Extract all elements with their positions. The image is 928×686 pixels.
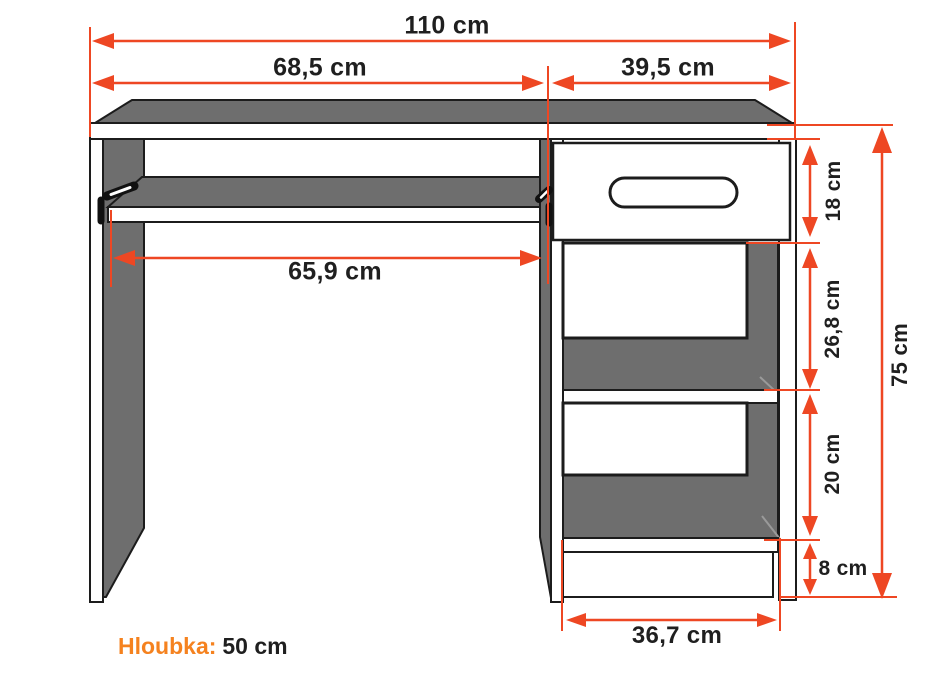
plinth — [563, 538, 778, 597]
dim-left-section-label: 68,5 cm — [273, 54, 367, 83]
open-shelf-upper — [563, 243, 778, 390]
dim-right-section-label: 39,5 cm — [621, 54, 715, 83]
dim-keyboard-tray-label: 65,9 cm — [288, 258, 382, 287]
dim-drawer-height-label: 18 cm — [822, 160, 846, 221]
depth-note: Hloubka:50 cm — [118, 633, 288, 660]
desk-line-art — [0, 0, 928, 686]
dim-total-height-label: 75 cm — [887, 323, 913, 387]
dim-plinth-arrow — [803, 543, 817, 595]
dim-cabinet-width-label: 36,7 cm — [632, 622, 722, 650]
depth-value: 50 cm — [222, 633, 287, 659]
drawer-handle-icon — [610, 178, 737, 207]
dim-total-width-label: 110 cm — [404, 12, 489, 41]
keyboard-shelf — [108, 177, 548, 222]
dim-drawer-height-arrow — [802, 145, 818, 237]
dim-upper-shelf-label: 26,8 cm — [821, 279, 845, 358]
dim-lower-shelf-label: 20 cm — [821, 433, 845, 494]
shelf-board — [563, 390, 778, 403]
open-shelf-lower — [563, 403, 780, 539]
dim-upper-shelf-arrow — [802, 248, 818, 389]
desk-dimension-diagram: 110 cm 68,5 cm 39,5 cm 65,9 cm 18 cm 26,… — [0, 0, 928, 686]
drawer-front — [553, 143, 790, 240]
dim-plinth-label: 8 cm — [818, 557, 867, 581]
desk-top — [90, 100, 795, 139]
dim-lower-shelf-arrow — [802, 394, 818, 536]
depth-label: Hloubka: — [118, 633, 216, 659]
